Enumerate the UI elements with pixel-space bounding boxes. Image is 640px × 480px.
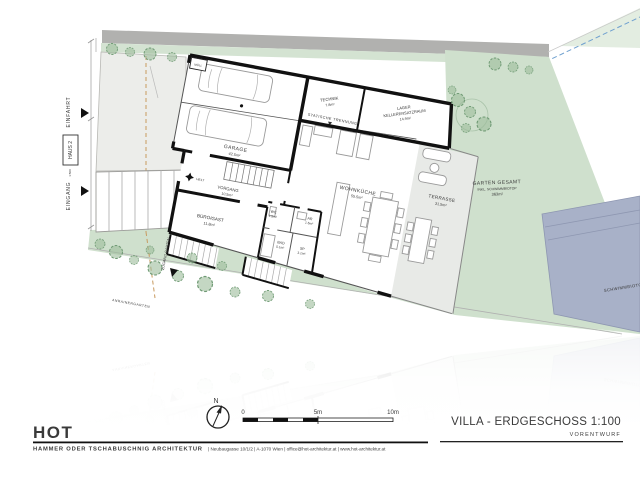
reflection-fade [0,336,640,480]
north-label: N [213,398,218,405]
firm-address: | Neubaugasse 10/1/2 | A-1070 Wien | off… [208,447,386,452]
scale-5m: 5m [314,410,322,416]
einfahrt-arrow-icon [81,108,89,118]
anrainergarten-label: ANRAINERGARTEN [112,298,151,309]
einfahrt-label: EINFAHRT [66,96,72,127]
eingang-label: EINGANG [66,182,72,211]
left-annotations: EINFAHRT HAUS 2 1:500 EINGANG [63,39,94,231]
sheet-status: VORENTWURF [570,432,621,438]
firm-name: HAMMER ODER TSCHABUSCHNIG ARCHITEKTUR [33,447,203,453]
haus2-tag: HAUS 2 1:500 [63,135,78,177]
logo-hot: HOT [33,423,73,442]
floor-plan-canvas: SCHWIMMBIOTOP EINFAHRT HAUS 2 1:500 [0,0,640,480]
scale-10m: 10m [387,410,399,416]
garden-area: 363m² [491,191,503,196]
haus2-label: HAUS 2 [68,141,74,159]
pool: SCHWIMMBIOTOP [542,196,640,332]
footer-rule-right [440,441,623,442]
eingang-arrow-icon [81,186,89,196]
footer-rule-left [33,442,428,444]
drawing-sheet: SCHWIMMBIOTOP EINFAHRT HAUS 2 1:500 [0,0,640,480]
haus2-sub-label: 1:500 [68,169,72,177]
sheet-title: VILLA - ERDGESCHOSS 1:100 [451,416,621,428]
